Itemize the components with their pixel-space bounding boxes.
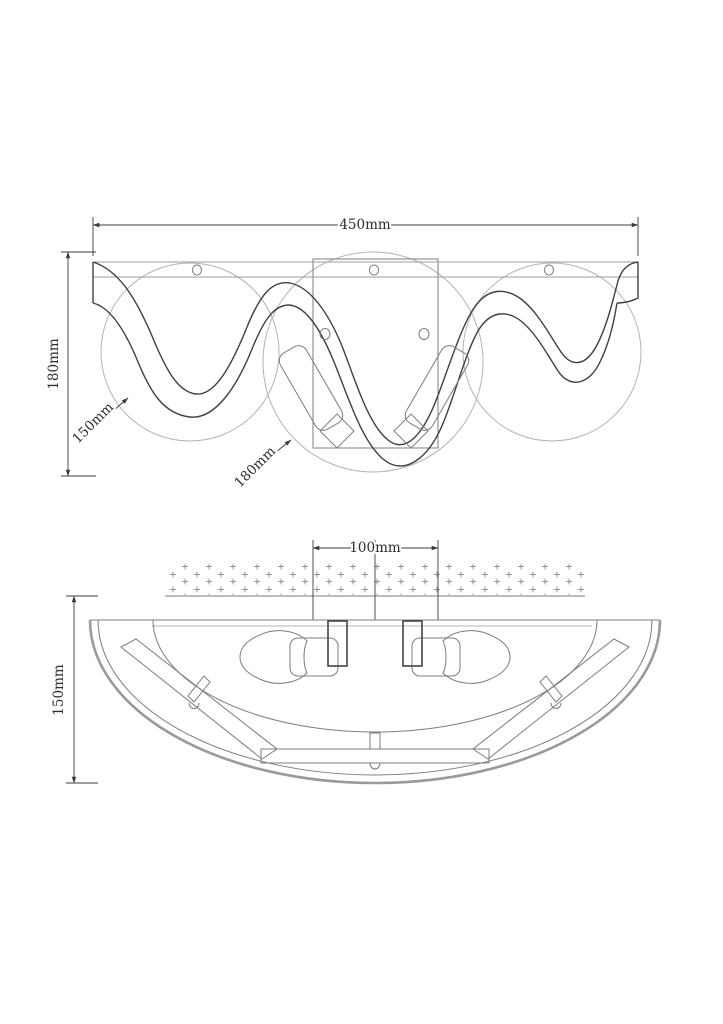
technical-drawing: 450mm 180mm (0, 0, 723, 1024)
socket-left (290, 638, 338, 676)
strip-clip-right (540, 676, 562, 702)
bulb-left (240, 631, 307, 684)
mounting-bar-screw-holes (193, 265, 554, 275)
wave-ribbon (93, 262, 638, 466)
plan-view: 100mm 150mm (51, 540, 660, 783)
retainer-bar (261, 733, 489, 769)
dim-overall-width-label: 450mm (339, 217, 391, 233)
center-connector (370, 733, 380, 749)
dim-overall-height: 180mm (46, 252, 96, 476)
dim-small-shade-label: 150mm (69, 399, 117, 447)
dim-projection-depth-label: 150mm (51, 664, 67, 716)
strip-clip-left (188, 676, 210, 702)
dim-large-shade-label: 180mm (231, 443, 279, 491)
wave-ribbon-right-end (617, 262, 638, 303)
socket-right (412, 638, 460, 676)
leader-small-shade: 150mm (69, 398, 128, 447)
center-knob (370, 763, 380, 769)
glass-strip-right (473, 639, 629, 759)
bulb-assembly-left (240, 621, 347, 683)
dim-backplate-width-label: 100mm (349, 540, 401, 556)
bowl-outer-rim (90, 620, 660, 783)
drawing-page: 450mm 180mm (0, 0, 723, 1024)
front-view: 450mm 180mm (46, 217, 641, 491)
bulb-right (443, 631, 510, 684)
bulb-assembly-right (403, 621, 510, 683)
dim-overall-height-label: 180mm (46, 338, 62, 390)
glass-edge-arc (153, 620, 597, 732)
bowl-inner-rim (98, 620, 652, 775)
ribbon-hole-right (419, 329, 429, 340)
glass-strip-left (121, 639, 277, 759)
dim-overall-width: 450mm (93, 217, 638, 256)
shade-circle-right (463, 263, 641, 441)
bowl-outline (90, 620, 660, 783)
wave-ribbon-outer-edge (93, 262, 638, 445)
wave-ribbon-inner-edge (93, 303, 617, 466)
leader-large-shade: 180mm (231, 440, 291, 491)
candle-holder-right (394, 342, 472, 448)
